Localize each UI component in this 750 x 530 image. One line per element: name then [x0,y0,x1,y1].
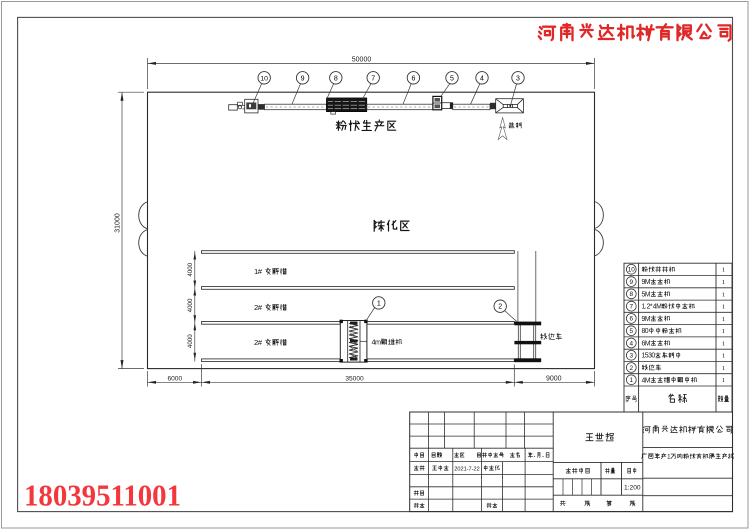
svg-text:9: 9 [301,75,305,82]
svg-text:4000: 4000 [187,334,194,348]
svg-text:5: 5 [630,328,634,335]
svg-text:1: 1 [722,377,725,384]
svg-text:0: 0 [651,353,655,360]
svg-text:6: 6 [411,75,415,82]
svg-text:#: # [258,338,263,347]
svg-text:M: M [645,340,651,347]
svg-text:2: 2 [630,365,634,372]
svg-text:4: 4 [480,75,484,82]
svg-text:4000: 4000 [187,298,194,312]
svg-text:3: 3 [516,75,520,82]
svg-text:#: # [258,303,263,312]
svg-text:1: 1 [722,353,725,360]
svg-text:1: 1 [667,454,671,461]
svg-text:1: 1 [722,340,725,347]
svg-text:1: 1 [722,316,725,323]
svg-text:18039511001: 18039511001 [24,479,181,513]
svg-text:1: 1 [722,304,725,311]
svg-text:7: 7 [371,75,375,82]
svg-text:9: 9 [630,279,634,286]
svg-text:M: M [645,279,651,286]
svg-text:M: M [645,377,651,384]
svg-text:M: M [645,316,651,323]
svg-text:M: M [656,304,662,311]
svg-text:0: 0 [645,328,649,335]
svg-text:10: 10 [628,267,636,274]
svg-text:4000: 4000 [187,262,194,276]
svg-text:1: 1 [722,267,725,274]
svg-text:#: # [258,267,263,276]
svg-text:1: 1 [630,377,634,384]
svg-text:1: 1 [722,291,725,298]
svg-text:1: 1 [377,300,381,307]
svg-text:M: M [645,291,651,298]
svg-text:10: 10 [260,75,268,82]
svg-text:4: 4 [630,340,634,347]
svg-text:2021-7-22: 2021-7-22 [454,466,480,472]
svg-text:50000: 50000 [352,57,372,64]
svg-text:5: 5 [450,75,454,82]
svg-text:6: 6 [630,316,634,323]
svg-text:8: 8 [334,75,338,82]
svg-text:m: m [375,337,381,346]
svg-text:1:200: 1:200 [624,485,641,492]
svg-text:31000: 31000 [114,213,121,233]
svg-text:9000: 9000 [546,375,562,382]
svg-text:35000: 35000 [345,376,364,383]
svg-text:3: 3 [630,353,634,360]
svg-text:2: 2 [498,304,502,311]
svg-text:1: 1 [722,279,725,286]
svg-text:8: 8 [630,291,634,298]
svg-text:1: 1 [722,365,725,372]
svg-text:7: 7 [630,304,634,311]
svg-text:1: 1 [722,328,725,335]
svg-text:6000: 6000 [167,376,182,383]
